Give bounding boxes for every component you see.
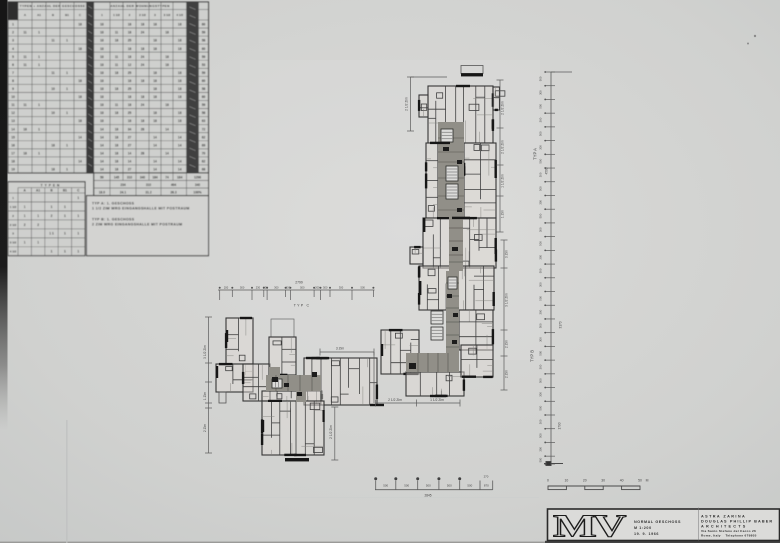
svg-text:18: 18 bbox=[100, 47, 104, 51]
svg-text:300: 300 bbox=[539, 337, 543, 342]
svg-text:2: 2 bbox=[12, 31, 14, 35]
svg-text:18: 18 bbox=[100, 103, 104, 107]
svg-text:2: 2 bbox=[37, 223, 39, 227]
svg-text:59: 59 bbox=[202, 71, 206, 75]
svg-text:500: 500 bbox=[361, 286, 366, 290]
svg-text:27: 27 bbox=[128, 135, 132, 139]
svg-text:14: 14 bbox=[153, 143, 157, 147]
svg-text:500: 500 bbox=[539, 350, 543, 355]
svg-text:TYP B: TYP B bbox=[530, 350, 535, 362]
svg-text:2 ZIM WRG EINGANGSHALLE MI: 2 ZIM WRG EINGANGSHALLE MIT POSTRAUM bbox=[92, 223, 182, 227]
svg-text:18: 18 bbox=[153, 119, 157, 123]
svg-text:1 1/2 ZIM WRG EINGANGSHALLE: 1 1/2 ZIM WRG EINGANGSHALLE MIT POSTRAUM bbox=[92, 207, 190, 211]
svg-text:18: 18 bbox=[178, 23, 182, 27]
svg-text:14: 14 bbox=[178, 168, 182, 172]
svg-text:18: 18 bbox=[128, 95, 132, 99]
svg-text:18: 18 bbox=[115, 111, 119, 115]
svg-text:1 1: 1 1 bbox=[49, 232, 54, 236]
svg-text:60: 60 bbox=[202, 95, 206, 99]
svg-text:18: 18 bbox=[100, 79, 104, 83]
svg-text:TYPEN + ANZAHL DER GESCHOSSE: TYPEN + ANZAHL DER GESCHOSSE bbox=[20, 4, 85, 8]
svg-text:18: 18 bbox=[141, 79, 145, 83]
svg-text:310: 310 bbox=[146, 183, 152, 187]
svg-text:18: 18 bbox=[165, 103, 169, 107]
svg-text:14: 14 bbox=[153, 135, 157, 139]
svg-text:300: 300 bbox=[539, 172, 543, 177]
svg-text:270: 270 bbox=[484, 475, 489, 479]
svg-text:25: 25 bbox=[128, 87, 132, 91]
svg-text:300: 300 bbox=[539, 117, 543, 122]
svg-text:500: 500 bbox=[539, 296, 543, 301]
svg-text:18: 18 bbox=[153, 47, 157, 51]
svg-text:14: 14 bbox=[165, 127, 169, 131]
svg-text:58: 58 bbox=[202, 39, 206, 43]
svg-text:12: 12 bbox=[11, 111, 15, 115]
svg-text:230: 230 bbox=[256, 286, 261, 290]
svg-text:2 1/2: 2 1/2 bbox=[10, 223, 17, 227]
svg-text:3: 3 bbox=[12, 39, 14, 43]
svg-text:11: 11 bbox=[23, 63, 27, 67]
svg-text:6: 6 bbox=[12, 63, 14, 67]
svg-text:18: 18 bbox=[100, 39, 104, 43]
svg-text:500: 500 bbox=[539, 131, 543, 136]
svg-text:18: 18 bbox=[100, 31, 104, 35]
svg-text:2 1/2 Zim: 2 1/2 Zim bbox=[500, 101, 504, 115]
svg-text:24: 24 bbox=[141, 63, 145, 67]
svg-text:1: 1 bbox=[64, 214, 66, 218]
svg-text:500: 500 bbox=[404, 484, 409, 488]
svg-text:200: 200 bbox=[224, 286, 229, 290]
svg-text:184: 184 bbox=[177, 175, 183, 179]
svg-text:18: 18 bbox=[78, 79, 82, 83]
svg-text:M 1:200: M 1:200 bbox=[634, 526, 652, 530]
svg-text:18: 18 bbox=[153, 23, 157, 27]
svg-text:62: 62 bbox=[202, 135, 206, 139]
svg-text:0: 0 bbox=[547, 479, 549, 483]
svg-text:A1: A1 bbox=[37, 13, 41, 17]
svg-text:50: 50 bbox=[638, 479, 642, 483]
svg-text:4: 4 bbox=[12, 47, 14, 51]
svg-text:1: 1 bbox=[64, 250, 66, 254]
svg-text:18.0: 18.0 bbox=[99, 191, 105, 195]
svg-text:9: 9 bbox=[12, 87, 14, 91]
svg-text:500: 500 bbox=[539, 268, 543, 273]
svg-text:500: 500 bbox=[383, 484, 388, 488]
svg-text:1: 1 bbox=[51, 250, 53, 254]
svg-text:12: 12 bbox=[128, 63, 132, 67]
svg-text:ARCHITECTS: ARCHITECTS bbox=[701, 524, 747, 528]
svg-text:500: 500 bbox=[539, 76, 543, 81]
svg-text:1790: 1790 bbox=[558, 422, 562, 429]
svg-text:1: 1 bbox=[38, 55, 40, 59]
svg-text:68: 68 bbox=[202, 168, 206, 172]
svg-text:300: 300 bbox=[339, 286, 344, 290]
svg-text:18: 18 bbox=[153, 87, 157, 91]
svg-text:25: 25 bbox=[128, 39, 132, 43]
svg-text:3 1/2 Zim: 3 1/2 Zim bbox=[203, 345, 207, 359]
svg-text:234: 234 bbox=[120, 183, 126, 187]
svg-text:27: 27 bbox=[128, 143, 132, 147]
svg-text:340: 340 bbox=[195, 183, 201, 187]
svg-text:1: 1 bbox=[38, 103, 40, 107]
svg-text:18: 18 bbox=[100, 55, 104, 59]
svg-text:2: 2 bbox=[51, 214, 53, 218]
svg-text:500: 500 bbox=[426, 484, 431, 488]
svg-text:2845: 2845 bbox=[424, 494, 431, 498]
svg-text:404: 404 bbox=[171, 183, 177, 187]
svg-text:18: 18 bbox=[165, 31, 169, 35]
svg-text:V: V bbox=[593, 508, 627, 543]
svg-text:500: 500 bbox=[467, 484, 472, 488]
svg-text:TYP C: TYP C bbox=[294, 304, 311, 308]
svg-text:1: 1 bbox=[66, 39, 68, 43]
svg-text:18: 18 bbox=[51, 168, 55, 172]
svg-text:18: 18 bbox=[153, 79, 157, 83]
svg-text:18: 18 bbox=[128, 31, 132, 35]
svg-text:18: 18 bbox=[128, 55, 132, 59]
svg-text:1: 1 bbox=[24, 241, 26, 245]
svg-text:59: 59 bbox=[202, 31, 206, 35]
svg-text:18: 18 bbox=[178, 111, 182, 115]
svg-text:14: 14 bbox=[100, 143, 104, 147]
svg-text:14: 14 bbox=[78, 135, 82, 139]
svg-text:18: 18 bbox=[100, 95, 104, 99]
svg-text:NORMAL GESCHOSS: NORMAL GESCHOSS bbox=[634, 520, 681, 524]
svg-text:11: 11 bbox=[115, 103, 119, 107]
svg-text:10: 10 bbox=[51, 87, 55, 91]
svg-text:27: 27 bbox=[128, 168, 132, 172]
svg-text:18: 18 bbox=[178, 39, 182, 43]
svg-text:18: 18 bbox=[178, 87, 182, 91]
svg-text:18: 18 bbox=[178, 79, 182, 83]
svg-text:4500: 4500 bbox=[545, 167, 549, 174]
svg-text:B1: B1 bbox=[65, 13, 69, 17]
svg-text:25: 25 bbox=[128, 111, 132, 115]
svg-text:14: 14 bbox=[178, 143, 182, 147]
svg-text:18: 18 bbox=[115, 143, 119, 147]
svg-text:18: 18 bbox=[153, 71, 157, 75]
svg-text:310: 310 bbox=[127, 175, 133, 179]
svg-text:300: 300 bbox=[539, 309, 543, 314]
svg-text:58: 58 bbox=[202, 87, 206, 91]
svg-text:24.1: 24.1 bbox=[120, 191, 126, 195]
svg-text:18: 18 bbox=[178, 71, 182, 75]
svg-text:M: M bbox=[553, 508, 597, 543]
svg-text:500: 500 bbox=[240, 286, 245, 290]
svg-text:300: 300 bbox=[539, 282, 543, 287]
svg-text:500: 500 bbox=[539, 213, 543, 218]
svg-text:1: 1 bbox=[38, 127, 40, 131]
svg-text:18: 18 bbox=[141, 95, 145, 99]
svg-text:2799: 2799 bbox=[295, 280, 303, 284]
svg-text:13: 13 bbox=[11, 119, 15, 123]
svg-text:300: 300 bbox=[539, 200, 543, 205]
svg-text:11: 11 bbox=[23, 55, 27, 59]
svg-text:300: 300 bbox=[539, 392, 543, 397]
svg-text:2 1/2 Zim: 2 1/2 Zim bbox=[329, 425, 333, 439]
svg-text:5: 5 bbox=[12, 55, 14, 59]
svg-text:500: 500 bbox=[300, 286, 305, 290]
svg-text:25: 25 bbox=[128, 71, 132, 75]
svg-text:8: 8 bbox=[12, 79, 14, 83]
svg-text:18: 18 bbox=[115, 71, 119, 75]
svg-text:18: 18 bbox=[128, 23, 132, 27]
svg-text:3 Zim: 3 Zim bbox=[336, 347, 344, 351]
svg-text:28: 28 bbox=[141, 151, 145, 155]
svg-text:7: 7 bbox=[12, 71, 14, 75]
svg-text:18: 18 bbox=[153, 95, 157, 99]
svg-text:18: 18 bbox=[178, 95, 182, 99]
svg-text:72: 72 bbox=[202, 127, 206, 131]
svg-text:14: 14 bbox=[153, 168, 157, 172]
svg-text:40: 40 bbox=[620, 479, 624, 483]
svg-text:1: 1 bbox=[51, 205, 53, 209]
svg-text:TYPEN: TYPEN bbox=[41, 183, 62, 187]
svg-text:B1: B1 bbox=[63, 188, 67, 192]
svg-text:300: 300 bbox=[539, 419, 543, 424]
svg-text:31.2: 31.2 bbox=[145, 191, 151, 195]
svg-text:17: 17 bbox=[11, 151, 15, 155]
svg-text:300: 300 bbox=[539, 227, 543, 232]
svg-text:500: 500 bbox=[539, 405, 543, 410]
svg-text:1: 1 bbox=[66, 87, 68, 91]
svg-text:11: 11 bbox=[115, 31, 119, 35]
svg-text:18: 18 bbox=[78, 23, 82, 27]
svg-text:500: 500 bbox=[539, 433, 543, 438]
svg-text:500: 500 bbox=[539, 457, 543, 462]
svg-text:18: 18 bbox=[100, 87, 104, 91]
svg-text:28: 28 bbox=[141, 127, 145, 131]
svg-text:A1: A1 bbox=[36, 188, 40, 192]
svg-text:18: 18 bbox=[115, 39, 119, 43]
svg-text:11: 11 bbox=[51, 71, 55, 75]
svg-text:1: 1 bbox=[64, 232, 66, 236]
svg-text:14: 14 bbox=[100, 151, 104, 155]
svg-text:14: 14 bbox=[11, 127, 15, 131]
svg-text:14: 14 bbox=[153, 159, 157, 163]
svg-text:1: 1 bbox=[64, 205, 66, 209]
svg-text:59: 59 bbox=[202, 103, 206, 107]
svg-text:10: 10 bbox=[11, 95, 15, 99]
svg-text:184: 184 bbox=[152, 175, 158, 179]
svg-text:500: 500 bbox=[539, 323, 543, 328]
svg-text:300: 300 bbox=[539, 364, 543, 369]
svg-text:18: 18 bbox=[100, 63, 104, 67]
svg-text:14: 14 bbox=[100, 127, 104, 131]
svg-text:1 1/2 Zim: 1 1/2 Zim bbox=[430, 398, 444, 402]
svg-text:1: 1 bbox=[24, 214, 26, 218]
svg-text:30: 30 bbox=[601, 479, 605, 483]
svg-text:340: 340 bbox=[140, 175, 146, 179]
svg-text:69: 69 bbox=[202, 143, 206, 147]
svg-text:1: 1 bbox=[24, 205, 26, 209]
svg-text:300: 300 bbox=[539, 90, 543, 95]
svg-text:24: 24 bbox=[141, 103, 145, 107]
svg-text:3 1/2: 3 1/2 bbox=[164, 13, 171, 17]
svg-text:500: 500 bbox=[539, 378, 543, 383]
svg-text:62: 62 bbox=[202, 159, 206, 163]
svg-text:1: 1 bbox=[77, 250, 79, 254]
svg-text:18: 18 bbox=[165, 63, 169, 67]
svg-text:300: 300 bbox=[539, 145, 543, 150]
svg-text:53: 53 bbox=[202, 63, 206, 67]
svg-text:18: 18 bbox=[11, 159, 15, 163]
svg-text:500: 500 bbox=[323, 286, 328, 290]
svg-text:18: 18 bbox=[115, 87, 119, 91]
svg-text:200: 200 bbox=[263, 286, 268, 290]
svg-text:11: 11 bbox=[115, 63, 119, 67]
svg-text:14: 14 bbox=[128, 159, 132, 163]
svg-text:10: 10 bbox=[565, 479, 569, 483]
svg-text:500: 500 bbox=[447, 484, 452, 488]
svg-text:M: M bbox=[646, 479, 649, 483]
svg-text:18: 18 bbox=[141, 47, 145, 51]
svg-text:300: 300 bbox=[274, 286, 279, 290]
svg-text:18: 18 bbox=[100, 119, 104, 123]
svg-text:58: 58 bbox=[202, 111, 206, 115]
svg-text:1: 1 bbox=[38, 31, 40, 35]
svg-text:18: 18 bbox=[100, 23, 104, 27]
svg-text:18: 18 bbox=[115, 168, 119, 172]
svg-text:18: 18 bbox=[23, 127, 27, 131]
svg-text:18: 18 bbox=[100, 71, 104, 75]
svg-text:18: 18 bbox=[141, 23, 145, 27]
svg-text:18: 18 bbox=[115, 127, 119, 131]
svg-text:2 1/2 Zim: 2 1/2 Zim bbox=[500, 140, 504, 154]
svg-text:18: 18 bbox=[23, 151, 27, 155]
svg-text:1: 1 bbox=[66, 111, 68, 115]
svg-text:18: 18 bbox=[115, 151, 119, 155]
svg-text:2: 2 bbox=[24, 223, 26, 227]
svg-text:145: 145 bbox=[114, 175, 120, 179]
svg-text:14: 14 bbox=[128, 151, 132, 155]
svg-text:19. 9. 1966: 19. 9. 1966 bbox=[634, 532, 659, 536]
svg-text:14: 14 bbox=[78, 159, 82, 163]
svg-text:3 Zim: 3 Zim bbox=[504, 250, 508, 258]
svg-text:500: 500 bbox=[539, 158, 543, 163]
svg-text:TYP B: 1. GESCHOSS: TYP B: 1. GESCHOSS bbox=[92, 218, 135, 222]
svg-text:500: 500 bbox=[539, 241, 543, 246]
svg-text:18: 18 bbox=[51, 143, 55, 147]
svg-text:59: 59 bbox=[202, 55, 206, 59]
svg-text:300: 300 bbox=[539, 254, 543, 259]
svg-text:Rome, Italy Telephone 67980: Rome, Italy Telephone 679805 bbox=[701, 533, 757, 537]
svg-text:TYP A: TYP A bbox=[533, 148, 538, 160]
svg-text:24: 24 bbox=[141, 31, 145, 35]
svg-text:Via Santo Stefano del Cacco 26: Via Santo Stefano del Cacco 26 bbox=[701, 529, 756, 533]
svg-text:60: 60 bbox=[202, 47, 206, 51]
svg-text:1 Zim: 1 Zim bbox=[500, 210, 504, 218]
svg-text:1: 1 bbox=[37, 214, 39, 218]
svg-text:18: 18 bbox=[128, 119, 132, 123]
svg-text:24: 24 bbox=[141, 55, 145, 59]
svg-text:18: 18 bbox=[178, 119, 182, 123]
svg-text:18: 18 bbox=[115, 159, 119, 163]
svg-text:26.3: 26.3 bbox=[170, 191, 176, 195]
svg-text:1: 1 bbox=[77, 196, 79, 200]
svg-text:14: 14 bbox=[100, 168, 104, 172]
svg-text:ANZAHL DER WOHNUNGSTYPEN: ANZAHL DER WOHNUNGSTYPEN bbox=[110, 4, 170, 8]
svg-text:1 1/2: 1 1/2 bbox=[113, 13, 120, 17]
svg-text:1: 1 bbox=[38, 151, 40, 155]
svg-text:870: 870 bbox=[484, 484, 489, 488]
svg-text:ASTRA ZARINA: ASTRA ZARINA bbox=[701, 515, 746, 519]
svg-text:1 1/2 Zim: 1 1/2 Zim bbox=[500, 174, 504, 188]
svg-text:1296: 1296 bbox=[194, 175, 201, 179]
svg-text:2 Zim: 2 Zim bbox=[504, 370, 508, 378]
svg-text:18: 18 bbox=[153, 111, 157, 115]
svg-text:150: 150 bbox=[286, 286, 291, 290]
svg-text:4 1/2: 4 1/2 bbox=[10, 250, 17, 254]
svg-text:63: 63 bbox=[202, 119, 206, 123]
svg-text:18: 18 bbox=[178, 47, 182, 51]
svg-text:60: 60 bbox=[202, 23, 206, 27]
svg-text:200: 200 bbox=[315, 286, 320, 290]
svg-text:2 Zim: 2 Zim bbox=[203, 424, 207, 432]
svg-text:18: 18 bbox=[78, 47, 82, 51]
svg-text:1: 1 bbox=[77, 232, 79, 236]
svg-text:1 Zim: 1 Zim bbox=[203, 392, 207, 400]
svg-text:3 1/2: 3 1/2 bbox=[10, 241, 17, 245]
svg-text:1: 1 bbox=[12, 23, 14, 27]
svg-text:18: 18 bbox=[128, 79, 132, 83]
svg-text:300: 300 bbox=[539, 447, 543, 452]
svg-text:18: 18 bbox=[141, 119, 145, 123]
svg-text:19: 19 bbox=[11, 168, 15, 172]
svg-text:18: 18 bbox=[128, 103, 132, 107]
svg-text:3170: 3170 bbox=[559, 321, 563, 328]
svg-text:500: 500 bbox=[539, 186, 543, 191]
svg-text:2 1/2: 2 1/2 bbox=[139, 13, 146, 17]
svg-text:14: 14 bbox=[178, 159, 182, 163]
svg-text:14: 14 bbox=[100, 135, 104, 139]
svg-text:14: 14 bbox=[165, 151, 169, 155]
svg-text:18: 18 bbox=[78, 119, 82, 123]
svg-text:500: 500 bbox=[539, 104, 543, 109]
svg-text:70: 70 bbox=[202, 151, 206, 155]
svg-text:11: 11 bbox=[115, 55, 119, 59]
svg-text:11: 11 bbox=[23, 31, 27, 35]
svg-text:TYP A: 1. GESCHOSS: TYP A: 1. GESCHOSS bbox=[92, 202, 135, 206]
svg-text:16: 16 bbox=[11, 143, 15, 147]
svg-text:18: 18 bbox=[153, 39, 157, 43]
svg-text:4 1/2: 4 1/2 bbox=[176, 13, 183, 17]
svg-text:11: 11 bbox=[51, 39, 55, 43]
svg-text:3 1/2 Zim: 3 1/2 Zim bbox=[504, 293, 508, 307]
svg-text:18: 18 bbox=[100, 111, 104, 115]
svg-text:DOUGLAS PHILLIP BABER: DOUGLAS PHILLIP BABER bbox=[701, 520, 773, 524]
svg-text:11: 11 bbox=[23, 103, 27, 107]
svg-text:1 1/2: 1 1/2 bbox=[10, 205, 17, 209]
svg-text:1: 1 bbox=[37, 241, 39, 245]
svg-text:1: 1 bbox=[66, 71, 68, 75]
svg-text:100%: 100% bbox=[193, 191, 201, 195]
svg-text:18: 18 bbox=[115, 135, 119, 139]
svg-text:14: 14 bbox=[100, 159, 104, 163]
svg-text:1: 1 bbox=[38, 63, 40, 67]
svg-text:1: 1 bbox=[77, 214, 79, 218]
svg-text:60: 60 bbox=[202, 79, 206, 83]
svg-text:2 1/2 Zim: 2 1/2 Zim bbox=[405, 97, 409, 111]
svg-text:1: 1 bbox=[66, 143, 68, 147]
svg-text:2 Zim: 2 Zim bbox=[504, 340, 508, 348]
svg-text:18: 18 bbox=[78, 95, 82, 99]
svg-text:59: 59 bbox=[100, 175, 104, 179]
svg-text:18: 18 bbox=[128, 47, 132, 51]
svg-text:18: 18 bbox=[165, 55, 169, 59]
svg-text:20: 20 bbox=[583, 479, 587, 483]
svg-text:10: 10 bbox=[51, 111, 55, 115]
